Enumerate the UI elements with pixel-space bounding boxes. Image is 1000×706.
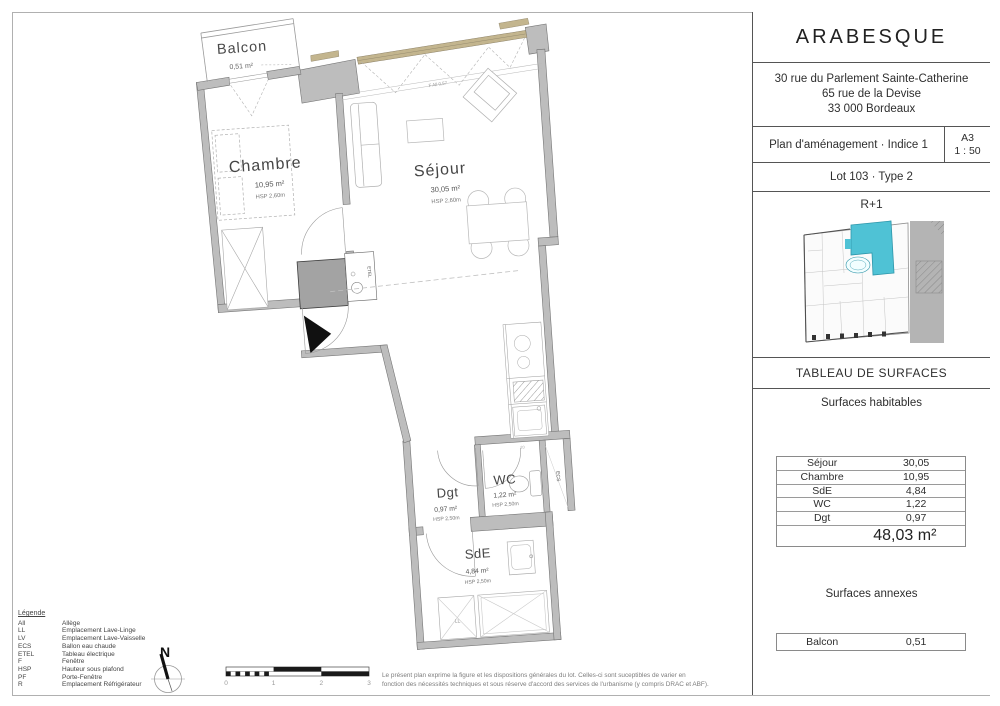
north-arrow: N [138,638,200,700]
address-line-2: 65 rue de la Devise [753,87,990,102]
scale-tick-3: 3 [367,680,371,687]
drawing-sheet: F All 0,57 ETEL [0,0,1000,706]
paper-and-scale: A3 1 : 50 [944,127,990,162]
title-block: ARABESQUE 30 rue du Parlement Sainte-Cat… [752,12,990,695]
room-label-sejour: Séjour [413,160,466,181]
drawing-scale: 1 : 50 [945,145,990,158]
room-label-wc: WC [493,471,517,488]
street-hatched-block [916,261,942,293]
room-hsp-sde: HSP 2,50m [464,578,491,586]
unit-bath-shape [846,257,870,273]
coffee-table [407,118,444,142]
technical-shaft [297,259,348,309]
plan-title: Plan d'aménagement · Indice 1 [753,127,944,162]
habitable-header: Surfaces habitables [753,397,990,409]
dining-set [466,187,531,259]
key-plan-map [794,211,950,351]
surfaces-header: TABLEAU DE SURFACES [753,358,990,389]
room-area-dgt: 0,97 m² [434,505,458,514]
legend-row: HSPHauteur sous plafond [18,666,145,674]
legend-row: LLEmplacement Lave-Linge [18,627,145,635]
disclaimer-line-1: Le présent plan exprime la figure et les… [382,672,686,679]
legend-title: Légende [18,610,145,618]
key-plan-section: R+1 [753,192,990,358]
disclaimer-line-2: fonction des nécessités techniques et so… [382,681,709,688]
legend-row: ECSBallon eau chaude [18,643,145,651]
room-area-wc: 1,22 m² [493,491,517,500]
legend-row: ETELTableau électrique [18,651,145,659]
legend-row: PFPorte-Fenêtre [18,674,145,682]
kitchen-counter [503,322,549,438]
chambre-door [299,208,346,257]
entrance-arrow [304,314,333,354]
address-line-1: 30 rue du Parlement Sainte-Catherine [753,72,990,87]
sde-sink [507,540,535,575]
annex-table: Balcon0,51 [776,633,966,651]
floor-plan: F All 0,57 ETEL [0,0,750,706]
total-area: 48,03 m² [845,526,965,546]
level-label: R+1 [753,197,990,211]
room-label-chambre: Chambre [228,154,302,176]
legend-row: REmplacement Réfrigérateur [18,681,145,689]
scale-tick-1: 1 [272,680,276,687]
room-label-balcon: Balcon [216,39,267,58]
washing-machine [438,595,477,639]
legend: Légende AllAllège LLEmplacement Lave-Lin… [18,610,145,689]
room-area-balcon: 0,51 m² [229,62,254,71]
table-row: Dgt0,97 [777,512,965,526]
legend-row: FFenêtre [18,658,145,666]
scale-tick-2: 2 [319,680,323,687]
lot-label: Lot 103 · Type 2 [753,163,990,192]
room-area-sejour: 30,05 m² [430,183,461,194]
scale-bar: 0 1 2 3 [220,662,380,690]
room-area-chambre: 10,95 m² [254,179,285,190]
project-title: ARABESQUE [753,12,990,63]
scale-tick-0: 0 [224,680,228,687]
legend-row: LVEmplacement Lave-Vaisselle [18,635,145,643]
room-hsp-wc: HSP 2,50m [492,501,519,509]
address-line-3: 33 000 Bordeaux [753,102,990,117]
table-row: SdE4,84 [777,485,965,499]
etel-cabinet: ETEL [345,252,377,302]
lounge-chair [463,68,517,122]
table-row: Chambre10,95 [777,471,965,485]
shower [478,590,550,637]
room-label-dgt: Dgt [436,484,459,500]
table-row: Balcon0,51 [777,634,965,650]
room-area-sde: 4,84 m² [465,567,489,576]
sofa [350,102,382,188]
room-hsp-dgt: HSP 2,50m [433,515,460,523]
table-total-row: 48,03 m² [777,526,965,546]
paper-size: A3 [945,132,990,145]
wardrobe [222,227,268,310]
surfaces-body: Surfaces habitables Séjour30,05 Chambre1… [753,389,990,694]
habitable-table: Séjour30,05 Chambre10,95 SdE4,84 WC1,22 … [776,456,966,547]
legend-row: AllAllège [18,620,145,628]
window-annotation: F All 0,57 [428,80,448,88]
plan-info-row: Plan d'aménagement · Indice 1 A3 1 : 50 [753,127,990,163]
highlighted-unit-balcony [845,239,851,249]
disclaimer-note: Le présent plan exprime la figure et les… [382,671,718,689]
room-hsp-chambre: HSP 2,60m [256,193,286,201]
washing-machine-label: LL [455,618,461,624]
table-row: WC1,22 [777,498,965,512]
balcony-door-threshold [229,73,268,83]
window-frames [309,18,531,67]
ecs-label: ECS [554,471,561,482]
etel-label: ETEL [367,266,373,278]
kitchen-dimension: 20 [520,444,526,449]
annex-header: Surfaces annexes [753,588,990,600]
dgt-door [438,448,479,489]
project-address: 30 rue du Parlement Sainte-Catherine 65 … [753,63,990,127]
fridge-space [513,380,544,402]
room-label-sde: SdE [464,545,491,562]
table-row: Séjour30,05 [777,457,965,471]
room-hsp-sejour: HSP 2,60m [431,197,461,205]
